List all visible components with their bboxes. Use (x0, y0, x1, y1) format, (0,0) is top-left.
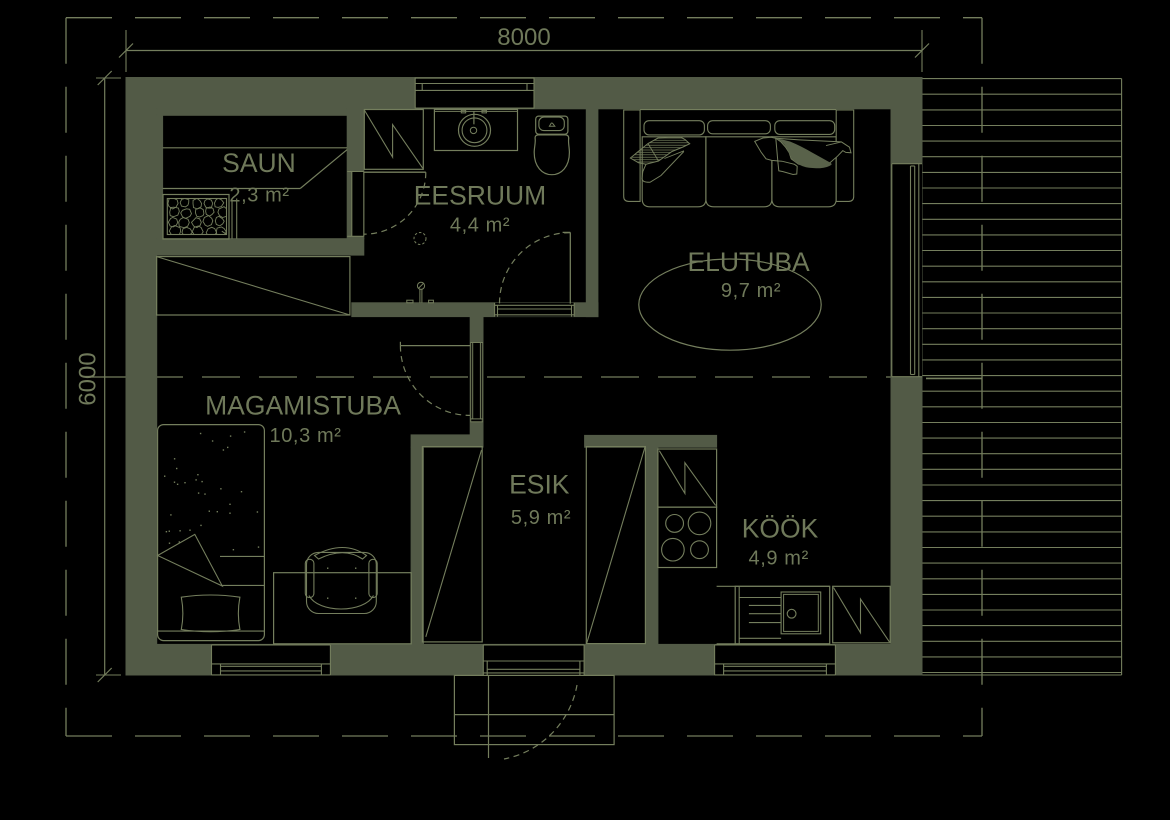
svg-text:SAUN: SAUN (222, 148, 296, 178)
svg-text:10,3 m²: 10,3 m² (269, 425, 341, 447)
svg-text:ESIK: ESIK (509, 470, 570, 500)
svg-text:4,9 m²: 4,9 m² (749, 548, 809, 570)
svg-text:8000: 8000 (497, 24, 550, 51)
svg-text:EESRUUM: EESRUUM (414, 181, 547, 211)
svg-text:KÖÖK: KÖÖK (742, 514, 819, 544)
svg-text:ELUTUBA: ELUTUBA (687, 247, 810, 277)
svg-text:6000: 6000 (75, 352, 102, 405)
svg-text:2,3 m²: 2,3 m² (229, 185, 289, 207)
svg-text:4,4 m²: 4,4 m² (450, 215, 510, 237)
svg-text:9,7 m²: 9,7 m² (721, 280, 781, 302)
svg-text:MAGAMISTUBA: MAGAMISTUBA (205, 391, 401, 421)
svg-text:5,9 m²: 5,9 m² (511, 507, 571, 529)
